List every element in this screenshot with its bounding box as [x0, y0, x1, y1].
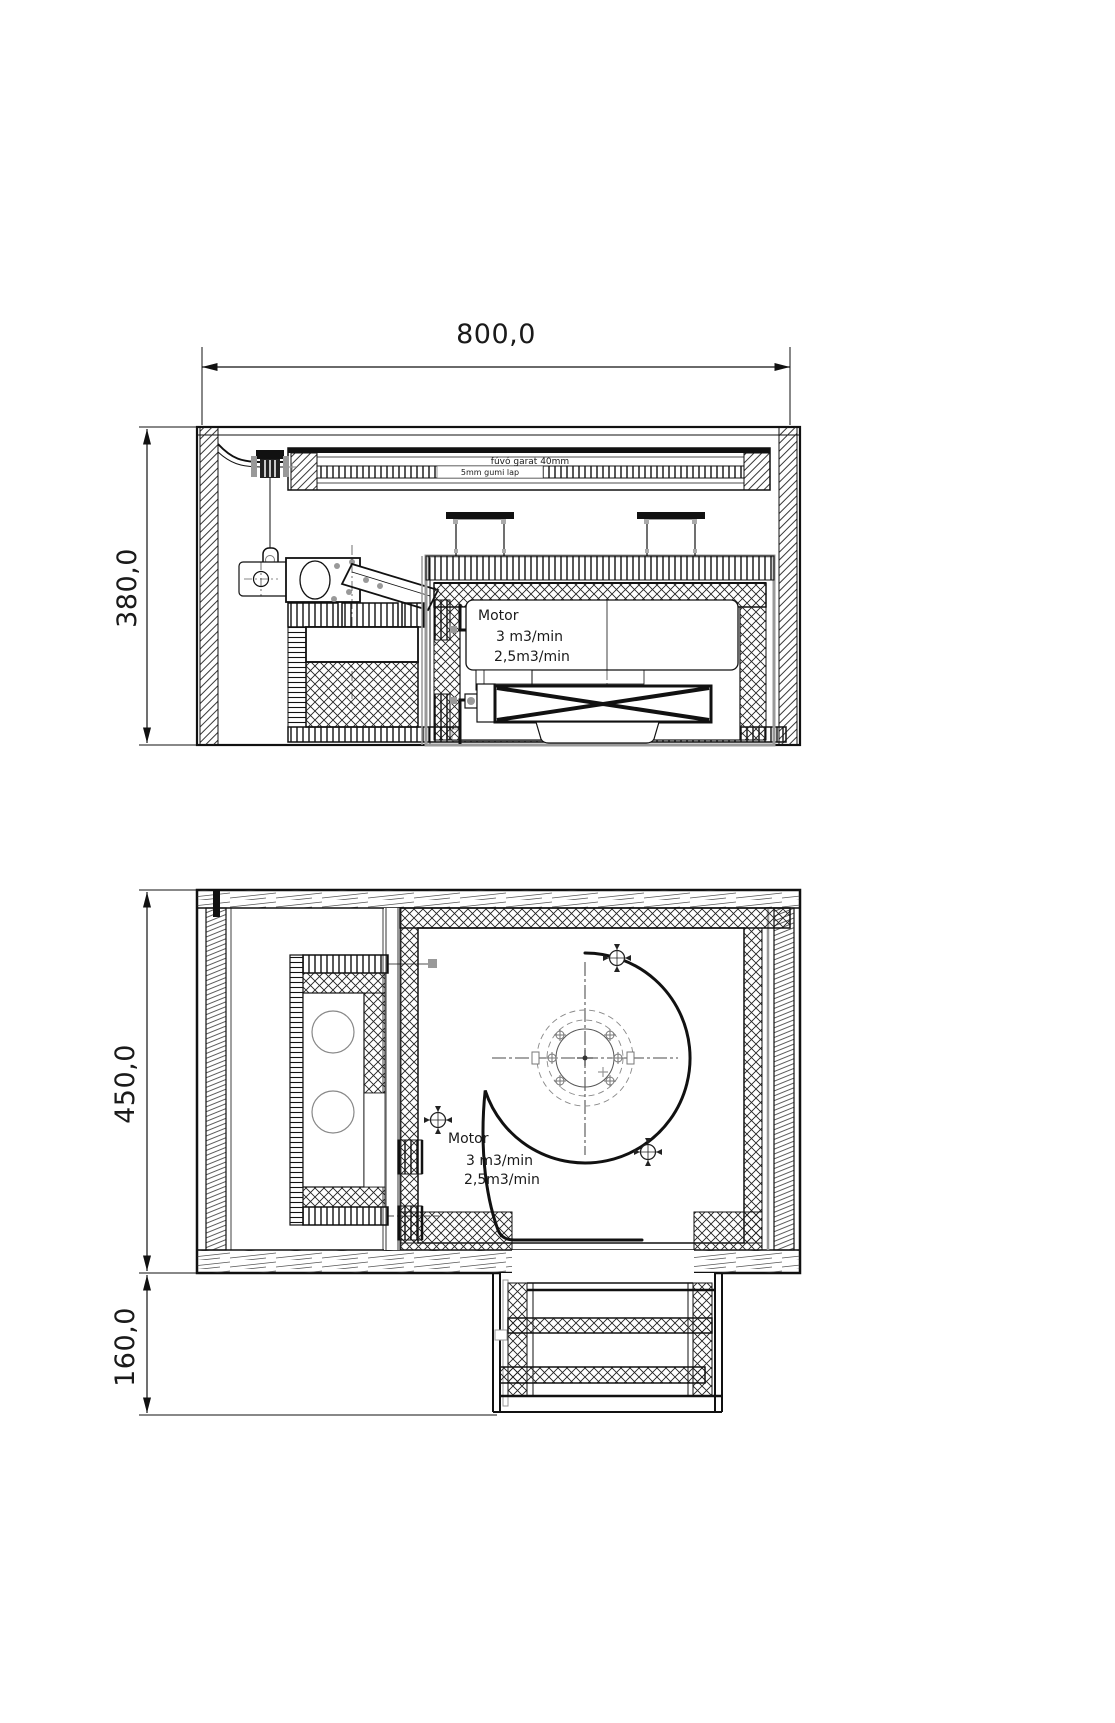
dim-800-label: 800,0: [456, 319, 536, 350]
plan-bottom-band: [197, 1250, 800, 1273]
dimension-160: 160,0: [110, 1275, 497, 1415]
side-right-wall: [779, 427, 797, 745]
motor-flow-max-side: 3 m3/min: [496, 629, 563, 645]
fan-enclosure: [398, 908, 790, 1250]
dim-450-label: 450,0: [110, 1044, 141, 1124]
plan-left-wall: [206, 908, 226, 1250]
drawing-sheet: 800,0 380,0 450,0 160,0 5mm-es gumi lap: [0, 0, 1115, 1723]
plan-view: Motor 3 m3/min 2,5m3/min: [197, 890, 800, 1273]
workbench: [288, 603, 424, 727]
plan-right-wall: [774, 908, 794, 1250]
motor-flow-min-plan: 2,5m3/min: [464, 1172, 540, 1188]
duct-top-label: fúvó garat 40mm: [491, 456, 569, 467]
dim-160-label: 160,0: [110, 1307, 141, 1387]
side-view: 5mm-es gumi lap fúvó garat 40mm 5mm gumi…: [197, 427, 800, 745]
motor-flow-max-plan: 3 m3/min: [466, 1153, 533, 1169]
dimension-800: 800,0: [202, 319, 790, 425]
motor-label-plan: Motor: [448, 1131, 489, 1147]
motor-label-side: Motor: [478, 608, 519, 624]
plan-top-band: [197, 890, 800, 908]
dim-380-label: 380,0: [112, 548, 143, 628]
duct-baffle-2: [500, 1367, 705, 1383]
duct-baffle-1: [508, 1318, 712, 1333]
dimension-380: 380,0: [112, 427, 207, 745]
blower-duct: fúvó garat 40mm 5mm gumi lap: [288, 448, 770, 490]
duct-inner-label: 5mm gumi lap: [461, 468, 519, 477]
motor-flow-min-side: 2,5m3/min: [494, 649, 570, 665]
outlet-duct: [493, 1250, 722, 1412]
technical-drawing-canvas: 800,0 380,0 450,0 160,0 5mm-es gumi lap: [0, 0, 1115, 1723]
side-left-wall: [200, 427, 218, 745]
drip-pan: [536, 722, 659, 743]
